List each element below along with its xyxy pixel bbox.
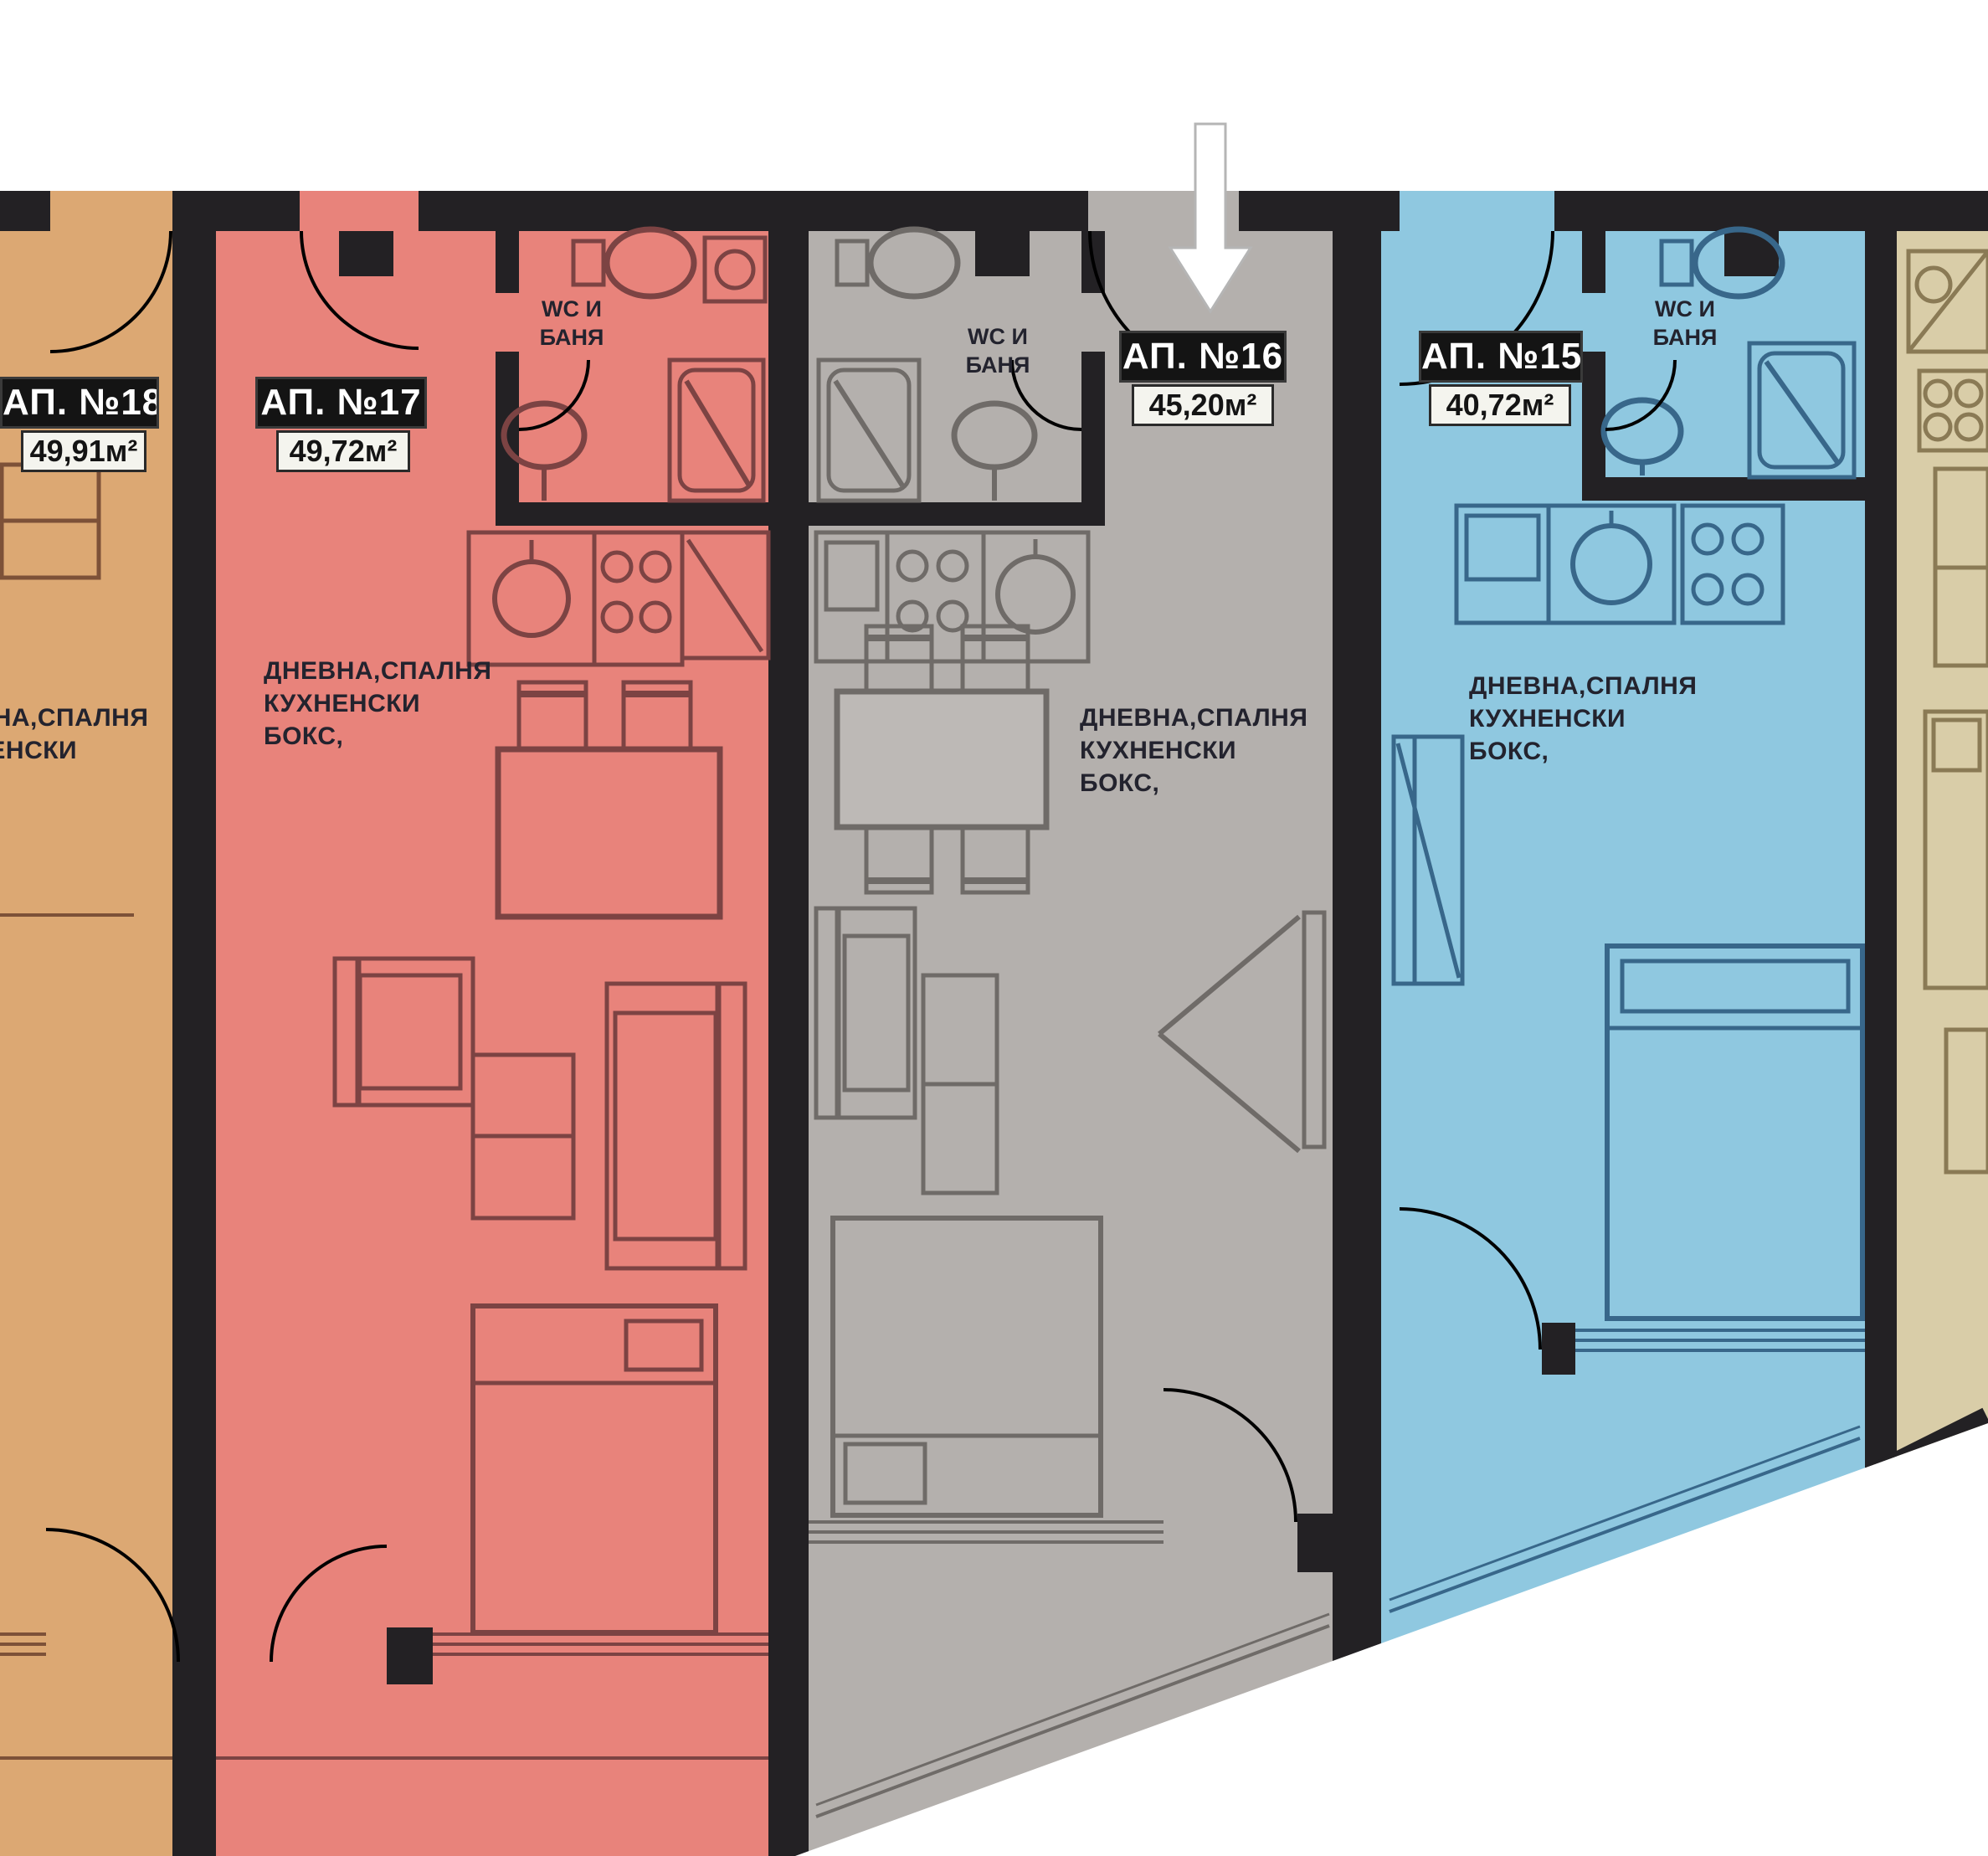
room-label-line: ДНЕВНА,СПАЛНЯ [0, 702, 148, 734]
apartment-strip-15[interactable] [1381, 191, 1865, 1856]
room-label-18: ДНЕВНА,СПАЛНЯ КУХНЕНСКИ БОКС, [0, 702, 148, 799]
wc-label-line: БАНЯ [496, 323, 647, 352]
floor-plan-drawing [0, 0, 1988, 1856]
wc-label-15: WC И БАНЯ [1610, 295, 1760, 352]
room-label-line: ДНЕВНА,СПАЛНЯ [264, 655, 491, 687]
apartment-18-area[interactable]: 49,91м² [21, 430, 146, 472]
room-label-line: БОКС, [1469, 735, 1697, 768]
apartment-15-label[interactable]: АП. №15 [1419, 331, 1583, 383]
apartment-15-area[interactable]: 40,72м² [1429, 384, 1571, 426]
room-label-line: БОКС, [1080, 767, 1307, 799]
wc-label-line: WC И [496, 295, 647, 323]
apartment-17-area[interactable]: 49,72м² [276, 430, 410, 472]
room-label-16: ДНЕВНА,СПАЛНЯ КУХНЕНСКИ БОКС, [1080, 702, 1307, 799]
wc-label-16: WC И БАНЯ [922, 322, 1073, 379]
room-label-line: ДНЕВНА,СПАЛНЯ [1080, 702, 1307, 734]
floor-plan: АП. №18 49,91м² АП. №17 49,72м² АП. №16 … [0, 0, 1988, 1856]
wc-label-line: WC И [1610, 295, 1760, 323]
room-label-line: ДНЕВНА,СПАЛНЯ [1469, 670, 1697, 702]
wc-label-17: WC И БАНЯ [496, 295, 647, 352]
wc-label-line: WC И [922, 322, 1073, 351]
room-label-15: ДНЕВНА,СПАЛНЯ КУХНЕНСКИ БОКС, [1469, 670, 1697, 768]
room-label-line: БОКС, [0, 767, 148, 799]
room-label-line: КУХНЕНСКИ [0, 734, 148, 767]
apartment-strip-16[interactable] [809, 191, 1333, 1856]
apartment-17-label[interactable]: АП. №17 [255, 377, 427, 429]
room-label-17: ДНЕВНА,СПАЛНЯ КУХНЕНСКИ БОКС, [264, 655, 491, 753]
room-label-line: БОКС, [264, 720, 491, 753]
wc-label-line: БАНЯ [922, 351, 1073, 379]
wc-label-line: БАНЯ [1610, 323, 1760, 352]
room-label-line: КУХНЕНСКИ [1469, 702, 1697, 735]
apartment-16-label[interactable]: АП. №16 [1119, 331, 1287, 383]
room-label-line: КУХНЕНСКИ [264, 687, 491, 720]
dining-table [837, 692, 1046, 827]
room-label-line: КУХНЕНСКИ [1080, 734, 1307, 767]
apartment-18-label[interactable]: АП. №18 [0, 377, 159, 429]
apartment-16-area[interactable]: 45,20м² [1132, 384, 1274, 426]
